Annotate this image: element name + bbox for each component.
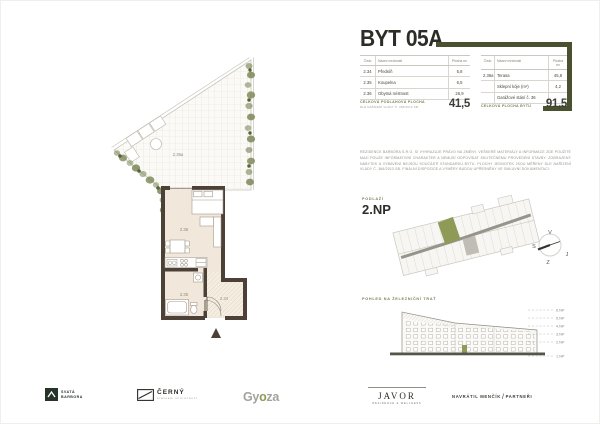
legal-disclaimer: REZIDENCE BARBORA S.R.O. SI VYHRAZUJE PR… bbox=[360, 150, 571, 173]
col-header-area: Plocha m² bbox=[549, 56, 567, 69]
logo-text: JAVOR bbox=[368, 391, 426, 401]
logo-javor: JAVOR REZIDENCE & WELLNESS bbox=[368, 387, 426, 405]
level-label: 3.NP bbox=[556, 333, 565, 337]
elevation-drawing: 6.NP 5.NP 4.NP 3.NP 2.NP 1.NP bbox=[360, 301, 573, 371]
kitchen-counter bbox=[165, 258, 207, 268]
level-label: 1.NP bbox=[556, 355, 565, 359]
svata-barbora-icon bbox=[45, 388, 58, 401]
washbasin bbox=[194, 273, 203, 282]
logo-navratil-mencik-partneri: NAVRÁTIL MENČÍK/PARTNEŘI bbox=[452, 394, 532, 401]
room-label-bath: 2.35 bbox=[180, 292, 189, 297]
level-label: 4.NP bbox=[556, 325, 565, 329]
room-label-living: 2.36 bbox=[180, 227, 189, 232]
col-header-number: Číslo bbox=[481, 56, 495, 69]
total-floor-area: CELKOVÁ PODLAHOVÁ PLOCHA DLE NAŘÍZENÍ VL… bbox=[360, 99, 470, 109]
room-tables: Číslo Název místnosti Plocha m² 2.34 Pře… bbox=[360, 55, 567, 104]
footer-logos: SVATÁ BARBORA ČERNÝ STAVEBNÍ SPOLEČNOST … bbox=[0, 384, 600, 414]
compass-east: V bbox=[548, 230, 552, 236]
col-header-number: Číslo bbox=[360, 56, 376, 65]
site-plan-drawing: V S J Z bbox=[378, 192, 571, 290]
logo-subtext: REZIDENCE & WELLNESS bbox=[368, 402, 426, 405]
logo-text: ČERNÝ bbox=[157, 390, 198, 397]
logo-text: Gy bbox=[243, 390, 259, 404]
building-facade bbox=[390, 312, 545, 355]
compass-north: S bbox=[532, 244, 536, 250]
total-unit-area-label: CELKOVÁ PLOCHA BYTU bbox=[481, 104, 531, 109]
table-header: Číslo Název místnosti Plocha m² bbox=[360, 55, 470, 66]
compass-west: Z bbox=[546, 260, 550, 266]
room-table-exterior: Číslo Název místnosti Plocha m² 2.36a Te… bbox=[481, 55, 567, 104]
bathtub bbox=[166, 300, 189, 316]
table-row: 2.35 Koupelna 6,5 bbox=[360, 77, 470, 88]
logo-text: za bbox=[266, 390, 279, 404]
entrance-arrow-icon bbox=[211, 328, 221, 338]
highlighted-unit-window bbox=[462, 345, 467, 353]
room-label-terrace: 2.36a bbox=[173, 152, 184, 157]
total-unit-area: CELKOVÁ PLOCHA BYTU 91,5 bbox=[481, 99, 567, 109]
table-row: 2.36a Terasa 45,8 bbox=[481, 70, 567, 81]
accent-bracket-right bbox=[567, 42, 572, 111]
table-header: Číslo Název místnosti Plocha m² bbox=[481, 55, 567, 70]
logo-text: BARBORA bbox=[61, 395, 83, 400]
level-label: 5.NP bbox=[556, 317, 565, 321]
page-title: BYT 05A bbox=[360, 26, 443, 53]
level-label: 6.NP bbox=[556, 309, 565, 313]
building-footprint bbox=[391, 192, 541, 281]
apartment-floorplan-drawing: 2.36a 2.36 2.35 2.34 bbox=[100, 48, 262, 344]
floorplan-sheet: 2.36a 2.36 2.35 2.34 BYT 05A Číslo Název… bbox=[0, 0, 600, 424]
logo-subtext: STAVEBNÍ SPOLEČNOST bbox=[157, 398, 198, 400]
total-floor-area-sublabel: DLE NAŘÍZENÍ VLÁDY Č. 366/2013 SB. bbox=[360, 105, 425, 109]
level-label: 2.NP bbox=[556, 341, 565, 345]
col-header-name: Název místnosti bbox=[376, 56, 449, 65]
accent-bracket-top bbox=[436, 42, 572, 47]
cerny-icon bbox=[137, 389, 154, 401]
toilet bbox=[191, 303, 198, 314]
total-floor-area-label: CELKOVÁ PODLAHOVÁ PLOCHA bbox=[360, 100, 425, 105]
room-table-interior: Číslo Název místnosti Plocha m² 2.34 Pře… bbox=[360, 55, 470, 104]
ground-line bbox=[390, 353, 545, 356]
table-row: 2.34 Předsíň 5,8 bbox=[360, 66, 470, 77]
total-floor-area-value: 41,5 bbox=[449, 99, 470, 109]
logo-gyoza: Gyoza bbox=[243, 390, 279, 404]
logo-text: NAVRÁTIL MENČÍK bbox=[452, 394, 501, 399]
total-unit-area-value: 91,5 bbox=[546, 99, 567, 109]
col-header-name: Název místnosti bbox=[495, 56, 549, 69]
info-panel: BYT 05A Číslo Název místnosti Plocha m² … bbox=[360, 0, 573, 424]
logo-svata-barbora: SVATÁ BARBORA bbox=[45, 388, 83, 401]
col-header-area: Plocha m² bbox=[449, 56, 470, 65]
room-label-hall: 2.34 bbox=[220, 296, 229, 301]
totals-row: CELKOVÁ PODLAHOVÁ PLOCHA DLE NAŘÍZENÍ VL… bbox=[360, 99, 567, 109]
logo-text: PARTNEŘI bbox=[506, 394, 533, 399]
table-row: Sklepní kóje (m²) 4,2 bbox=[481, 81, 567, 92]
bed bbox=[192, 190, 223, 214]
logo-cerny: ČERNÝ STAVEBNÍ SPOLEČNOST bbox=[137, 389, 198, 401]
compass-south: J bbox=[566, 252, 569, 258]
